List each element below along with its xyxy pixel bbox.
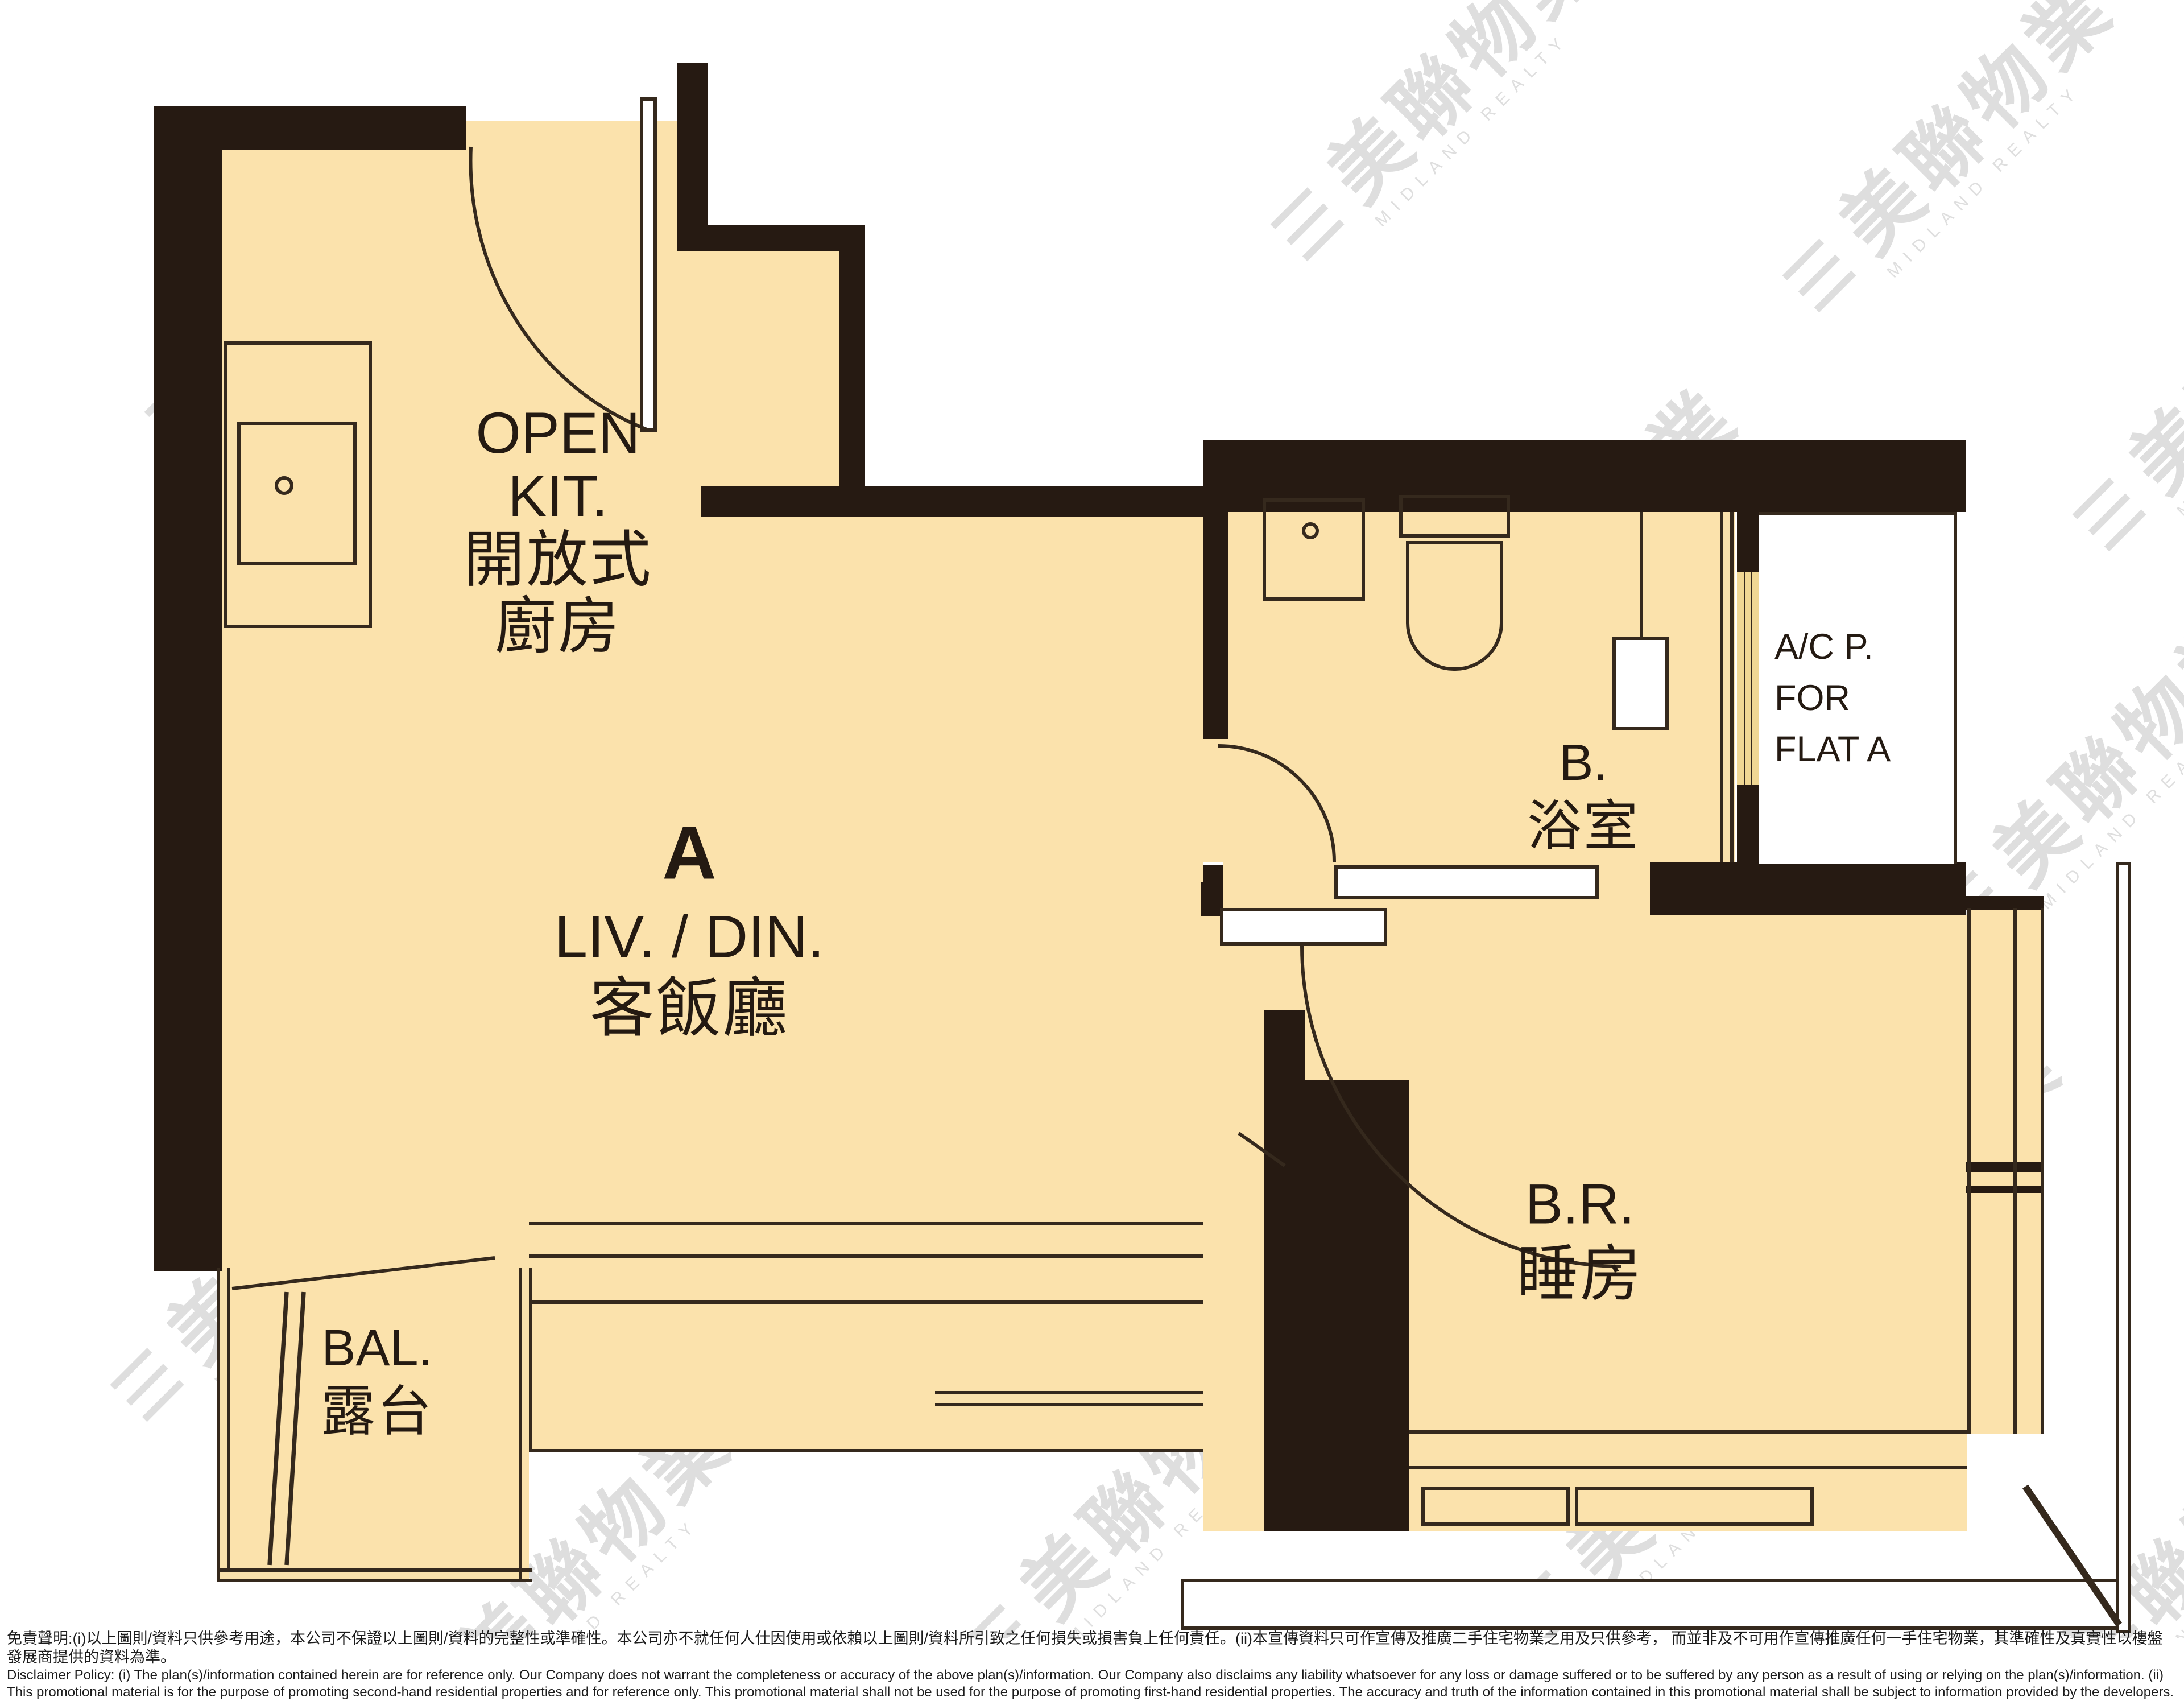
living-dining-label: A LIV. / DIN. 客飯廳 [555, 814, 825, 1046]
living-dining-en: LIV. / DIN. [555, 905, 825, 969]
bay-window-divider-top [1966, 896, 2044, 910]
watermark-latin: MIDLAND REALTY [2116, 262, 2184, 580]
bedroom-label: B.R. 睡房 [1517, 1174, 1643, 1308]
bedroom-window-frame1 [1421, 1487, 1570, 1526]
wall-bath-bottom-right [1650, 862, 1966, 915]
wall-kitchen-top [154, 106, 466, 150]
ac-label-line2: FOR [1774, 674, 1891, 725]
balcony-en: BAL. [321, 1323, 433, 1378]
entrance-door-leaf [640, 97, 657, 432]
balcony-wall-left-outer [217, 1268, 220, 1582]
ac-louvre [1737, 572, 1759, 785]
living-dining-zh: 客飯廳 [555, 976, 825, 1046]
heater-hanger-line [1640, 512, 1643, 637]
ac-platform: A/C P. FOR FLAT A [1759, 512, 1957, 864]
floor-plan-page: ☰美聯物業MIDLAND REALTY☰美聯物業MIDLAND REALTY☰美… [0, 0, 2184, 1701]
midland-realty-watermark: ☰美聯物業MIDLAND REALTY [2058, 204, 2184, 580]
balcony-wall-bottom-outer [217, 1579, 532, 1582]
wall-notch-step-h [677, 225, 865, 251]
bathroom-label: B. 浴室 [1527, 737, 1640, 857]
watermark-logo-icon: ☰美聯物業 [2058, 204, 2184, 564]
ac-label-line3: FLAT A [1774, 725, 1891, 777]
bathroom-zh: 浴室 [1527, 798, 1640, 857]
ac-louvre-line2 [1751, 572, 1752, 785]
ac-label-line1: A/C P. [1774, 623, 1891, 674]
balcony-wall-left-inner [227, 1268, 230, 1572]
kitchen-sink-tap-icon [275, 476, 293, 495]
bedroom-window-inner [1409, 1430, 1967, 1434]
window-detail-2 [935, 1403, 1203, 1406]
bay-line-outer [2041, 908, 2044, 1434]
wall-louvre-cap-bottom [1737, 785, 1759, 864]
exterior-notch-right [865, 0, 1203, 486]
bathroom-sink-tap-icon [1302, 522, 1319, 539]
sliding-door-panel-2 [1220, 908, 1387, 946]
sliding-door-panel-1 [1334, 865, 1599, 899]
window-line-2 [529, 1254, 1203, 1258]
water-heater [1612, 637, 1669, 730]
wall-slider-cap [1201, 882, 1222, 916]
floor-plan-canvas: ☰美聯物業MIDLAND REALTY☰美聯物業MIDLAND REALTY☰美… [0, 0, 2184, 1701]
balcony-wall-right-outer [529, 1268, 532, 1452]
watermark-latin: MIDLAND REALTY [1314, 0, 1632, 290]
bay-line-inner [1967, 908, 1971, 1434]
ac-louvre-line1 [1744, 572, 1745, 785]
window-line-3 [529, 1300, 1203, 1304]
open-kitchen-zh2: 廚房 [463, 595, 652, 662]
bedroom-window-frame2 [1575, 1487, 1814, 1526]
wall-bathroom-left [1203, 500, 1228, 739]
wall-entry-stub [677, 63, 708, 251]
kitchen-sink [237, 422, 357, 565]
wall-louvre-cap-top [1737, 512, 1759, 572]
window-line-1 [529, 1222, 1203, 1225]
midland-realty-watermark: ☰美聯物業MIDLAND REALTY [1768, 0, 2144, 341]
bay-outer-band-bottom [1181, 1579, 2131, 1630]
exterior-notch-upper [708, 0, 839, 225]
exterior-notch-mid [839, 0, 865, 251]
bedroom-window-mid [1409, 1466, 1967, 1469]
wall-bedroom-left-block [1264, 1080, 1409, 1531]
toilet-tank [1399, 495, 1510, 538]
disclaimer-en: Disclaimer Policy: (i) The plan(s)/infor… [7, 1667, 2177, 1700]
open-kitchen-zh1: 開放式 [463, 529, 652, 596]
watermark-logo-icon: ☰美聯物業 [1768, 0, 2128, 325]
balcony-label: BAL. 露台 [321, 1323, 433, 1442]
open-kitchen-label: OPEN KIT. 開放式 廚房 [463, 403, 652, 662]
bathroom-right-wall-line2 [1730, 512, 1734, 862]
bedroom-en: B.R. [1517, 1174, 1643, 1235]
wall-living-north [701, 486, 1228, 517]
wall-left [154, 106, 222, 1271]
bay-line-mid [2013, 908, 2017, 1434]
wall-notch-step-v [839, 251, 865, 486]
bay-window-divider-mid2 [1966, 1186, 2044, 1193]
window-line-outer [529, 1449, 1203, 1452]
bedroom-zh: 睡房 [1517, 1241, 1643, 1308]
bay-window-divider-mid1 [1966, 1162, 2044, 1172]
balcony-wall-bottom-inner [217, 1568, 532, 1572]
bay-outer-band-right [2116, 862, 2131, 1633]
bathroom-right-wall-line1 [1720, 512, 1723, 862]
living-window-ledge [529, 1254, 1203, 1452]
midland-realty-watermark: ☰美聯物業MIDLAND REALTY [1256, 0, 1632, 290]
disclaimer: 免責聲明:(i)以上圖則/資料只供參考用途，本公司不保證以上圖則/資料的完整性或… [7, 1629, 2177, 1700]
balcony-wall-right-inner [519, 1268, 522, 1582]
disclaimer-zh: 免責聲明:(i)以上圖則/資料只供參考用途，本公司不保證以上圖則/資料的完整性或… [7, 1629, 2177, 1668]
watermark-latin: MIDLAND REALTY [1826, 23, 2144, 341]
unit-letter: A [555, 814, 825, 895]
window-detail-1 [935, 1391, 1203, 1394]
open-kitchen-en2: KIT. [463, 466, 652, 529]
bathroom-en: B. [1527, 737, 1640, 792]
open-kitchen-en1: OPEN [463, 403, 652, 466]
balcony-zh: 露台 [321, 1383, 433, 1442]
watermark-logo-icon: ☰美聯物業 [1256, 0, 1616, 274]
bathroom-sink [1263, 498, 1365, 601]
toilet-bowl [1406, 541, 1503, 671]
ac-platform-label: A/C P. FOR FLAT A [1774, 623, 1891, 777]
wall-bedroom-left-upper [1264, 1010, 1305, 1087]
